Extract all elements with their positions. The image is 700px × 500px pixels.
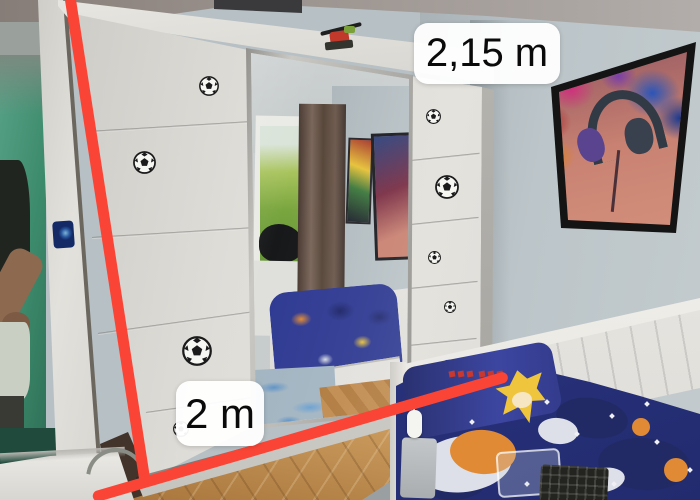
soccer-ball-decal (182, 336, 212, 366)
bedside-pocket (400, 437, 437, 498)
soccer-ball-decal (428, 251, 441, 264)
measurement-label-bottom-text: 2 m (185, 390, 255, 438)
toy-part (344, 26, 355, 33)
mirror-sheen (246, 48, 414, 432)
bedroom-photo: 2,15 m 2 m (0, 0, 700, 500)
measurement-label-top-text: 2,15 m (426, 31, 548, 76)
measurement-label-bottom: 2 m (176, 381, 264, 446)
soccer-ball-decal (199, 76, 219, 96)
soccer-ball-decal (426, 109, 441, 124)
soccer-ball-decal (444, 300, 456, 312)
box-on-wardrobe (214, 0, 302, 14)
mirror-reflection (246, 48, 414, 432)
keyboard-on-bed (539, 464, 609, 500)
soccer-ball-decal (435, 175, 459, 199)
airpods-case (407, 410, 422, 438)
soccer-ball-decal (133, 151, 156, 174)
measurement-label-top: 2,15 m (414, 23, 560, 84)
